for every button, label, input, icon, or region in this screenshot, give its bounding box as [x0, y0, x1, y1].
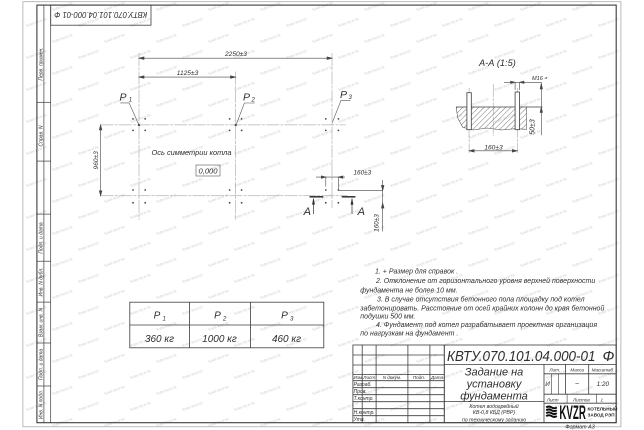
svg-text:Изм.Лист: Изм.Лист [354, 375, 376, 380]
svg-text:ЗАВОД РЭП: ЗАВОД РЭП [588, 413, 615, 418]
svg-text:1125±3: 1125±3 [177, 70, 199, 77]
svg-text:забетонировать. Расстояние от: забетонировать. Расстояние от осей крайн… [359, 305, 604, 313]
svg-text:Инв. N подл.: Инв. N подл. [38, 390, 44, 419]
svg-text:2: 2 [251, 97, 256, 103]
svg-text:Ось симметрии котла: Ось симметрии котла [152, 148, 232, 157]
svg-text:P: P [281, 311, 288, 322]
svg-text:Н.контр.: Н.контр. [354, 410, 375, 416]
svg-text:P: P [243, 92, 250, 104]
svg-text:160±3: 160±3 [373, 214, 380, 232]
svg-text:360 кг: 360 кг [145, 334, 174, 345]
svg-text:–: – [574, 380, 579, 387]
svg-text:по техническому заданию: по техническому заданию [462, 418, 526, 424]
svg-text:160±3: 160±3 [354, 170, 372, 177]
svg-text:1. + Размер для справок .: 1. + Размер для справок . [375, 268, 458, 276]
svg-text:2. Отклонение от горизонтально: 2. Отклонение от горизонтального уровня … [375, 277, 595, 285]
svg-text:2: 2 [222, 317, 227, 323]
svg-text:Лист: Лист [546, 397, 559, 402]
svg-text:Взам. инв. N: Взам. инв. N [38, 308, 44, 338]
svg-text:0,000: 0,000 [198, 167, 218, 176]
svg-text:KVZR: KVZR [559, 402, 586, 424]
svg-text:Утв.: Утв. [354, 417, 365, 423]
svg-text:Формат А3: Формат А3 [565, 424, 595, 430]
svg-text:160±3: 160±3 [484, 144, 503, 151]
svg-text:КВ-0,8 КБД (РВР): КВ-0,8 КБД (РВР) [473, 410, 515, 416]
svg-text:A: A [303, 206, 311, 218]
svg-text:по нагрузкам на фундамент .: по нагрузкам на фундамент . [360, 330, 458, 338]
svg-text:P: P [154, 311, 161, 322]
svg-text:P: P [340, 89, 347, 101]
svg-text:Задание на: Задание на [465, 366, 524, 378]
svg-text:1: 1 [163, 317, 166, 323]
svg-text:Масштаб: Масштаб [592, 367, 614, 372]
svg-text:Т.контр.: Т.контр. [354, 396, 374, 402]
svg-text:Пров.: Пров. [354, 389, 367, 395]
svg-text:Подп.: Подп. [413, 375, 425, 380]
svg-text:50±3: 50±3 [529, 119, 536, 135]
svg-text:1000 кг: 1000 кг [202, 334, 237, 345]
svg-text:Разраб.: Разраб. [354, 382, 372, 388]
svg-text:установку: установку [466, 378, 523, 390]
svg-text:Справ. N: Справ. N [38, 125, 44, 146]
svg-text:Инв. N дубл.: Инв. N дубл. [38, 268, 44, 297]
svg-text:4. Фундамент под котел разраба: 4. Фундамент под котел разрабатывает про… [376, 321, 597, 329]
svg-text:КОТЕЛЬНЫЙ: КОТЕЛЬНЫЙ [588, 405, 618, 412]
svg-text:Котел водогрейный: Котел водогрейный [469, 403, 518, 410]
svg-text:Подп. и дата: Подп. и дата [38, 222, 44, 254]
svg-text:Перв. примен.: Перв. примен. [38, 47, 44, 80]
svg-text:фундамента не более 10 мм.: фундамента не более 10 мм. [360, 287, 457, 295]
svg-text:2250±3: 2250±3 [224, 51, 247, 58]
svg-text:И: И [545, 381, 550, 388]
svg-text:1:20: 1:20 [597, 381, 610, 388]
svg-text:Масса: Масса [570, 367, 584, 372]
svg-text:3. В случае отсутствия бетонно: 3. В случае отсутствия бетонного пола пл… [377, 296, 585, 304]
svg-text:Ф: Ф [603, 348, 615, 365]
svg-text:1: 1 [129, 97, 132, 103]
svg-text:фундамента: фундамента [460, 390, 528, 402]
svg-text:Лит.: Лит. [548, 367, 560, 372]
svg-text:Подп. и дата: Подп. и дата [38, 349, 44, 381]
svg-text:КВТУ.070.101.04.000-01 Ф: КВТУ.070.101.04.000-01 Ф [54, 10, 148, 19]
svg-text:P: P [120, 92, 127, 104]
svg-text:подушки 500 мм.: подушки 500 мм. [360, 313, 415, 321]
svg-text:М16: М16 [532, 76, 544, 82]
svg-text:P: P [214, 311, 221, 322]
svg-text:1: 1 [601, 397, 604, 402]
svg-text:460 кг: 460 кг [272, 334, 301, 345]
svg-text:960±3: 960±3 [93, 151, 100, 170]
svg-text:N докум.: N докум. [383, 375, 402, 380]
svg-text:Дата: Дата [430, 375, 444, 380]
svg-text:КВТУ.070.101.04.000-01: КВТУ.070.101.04.000-01 [447, 348, 596, 365]
svg-text:A: A [357, 206, 365, 218]
svg-text:А-А (1:5): А-А (1:5) [478, 58, 516, 68]
